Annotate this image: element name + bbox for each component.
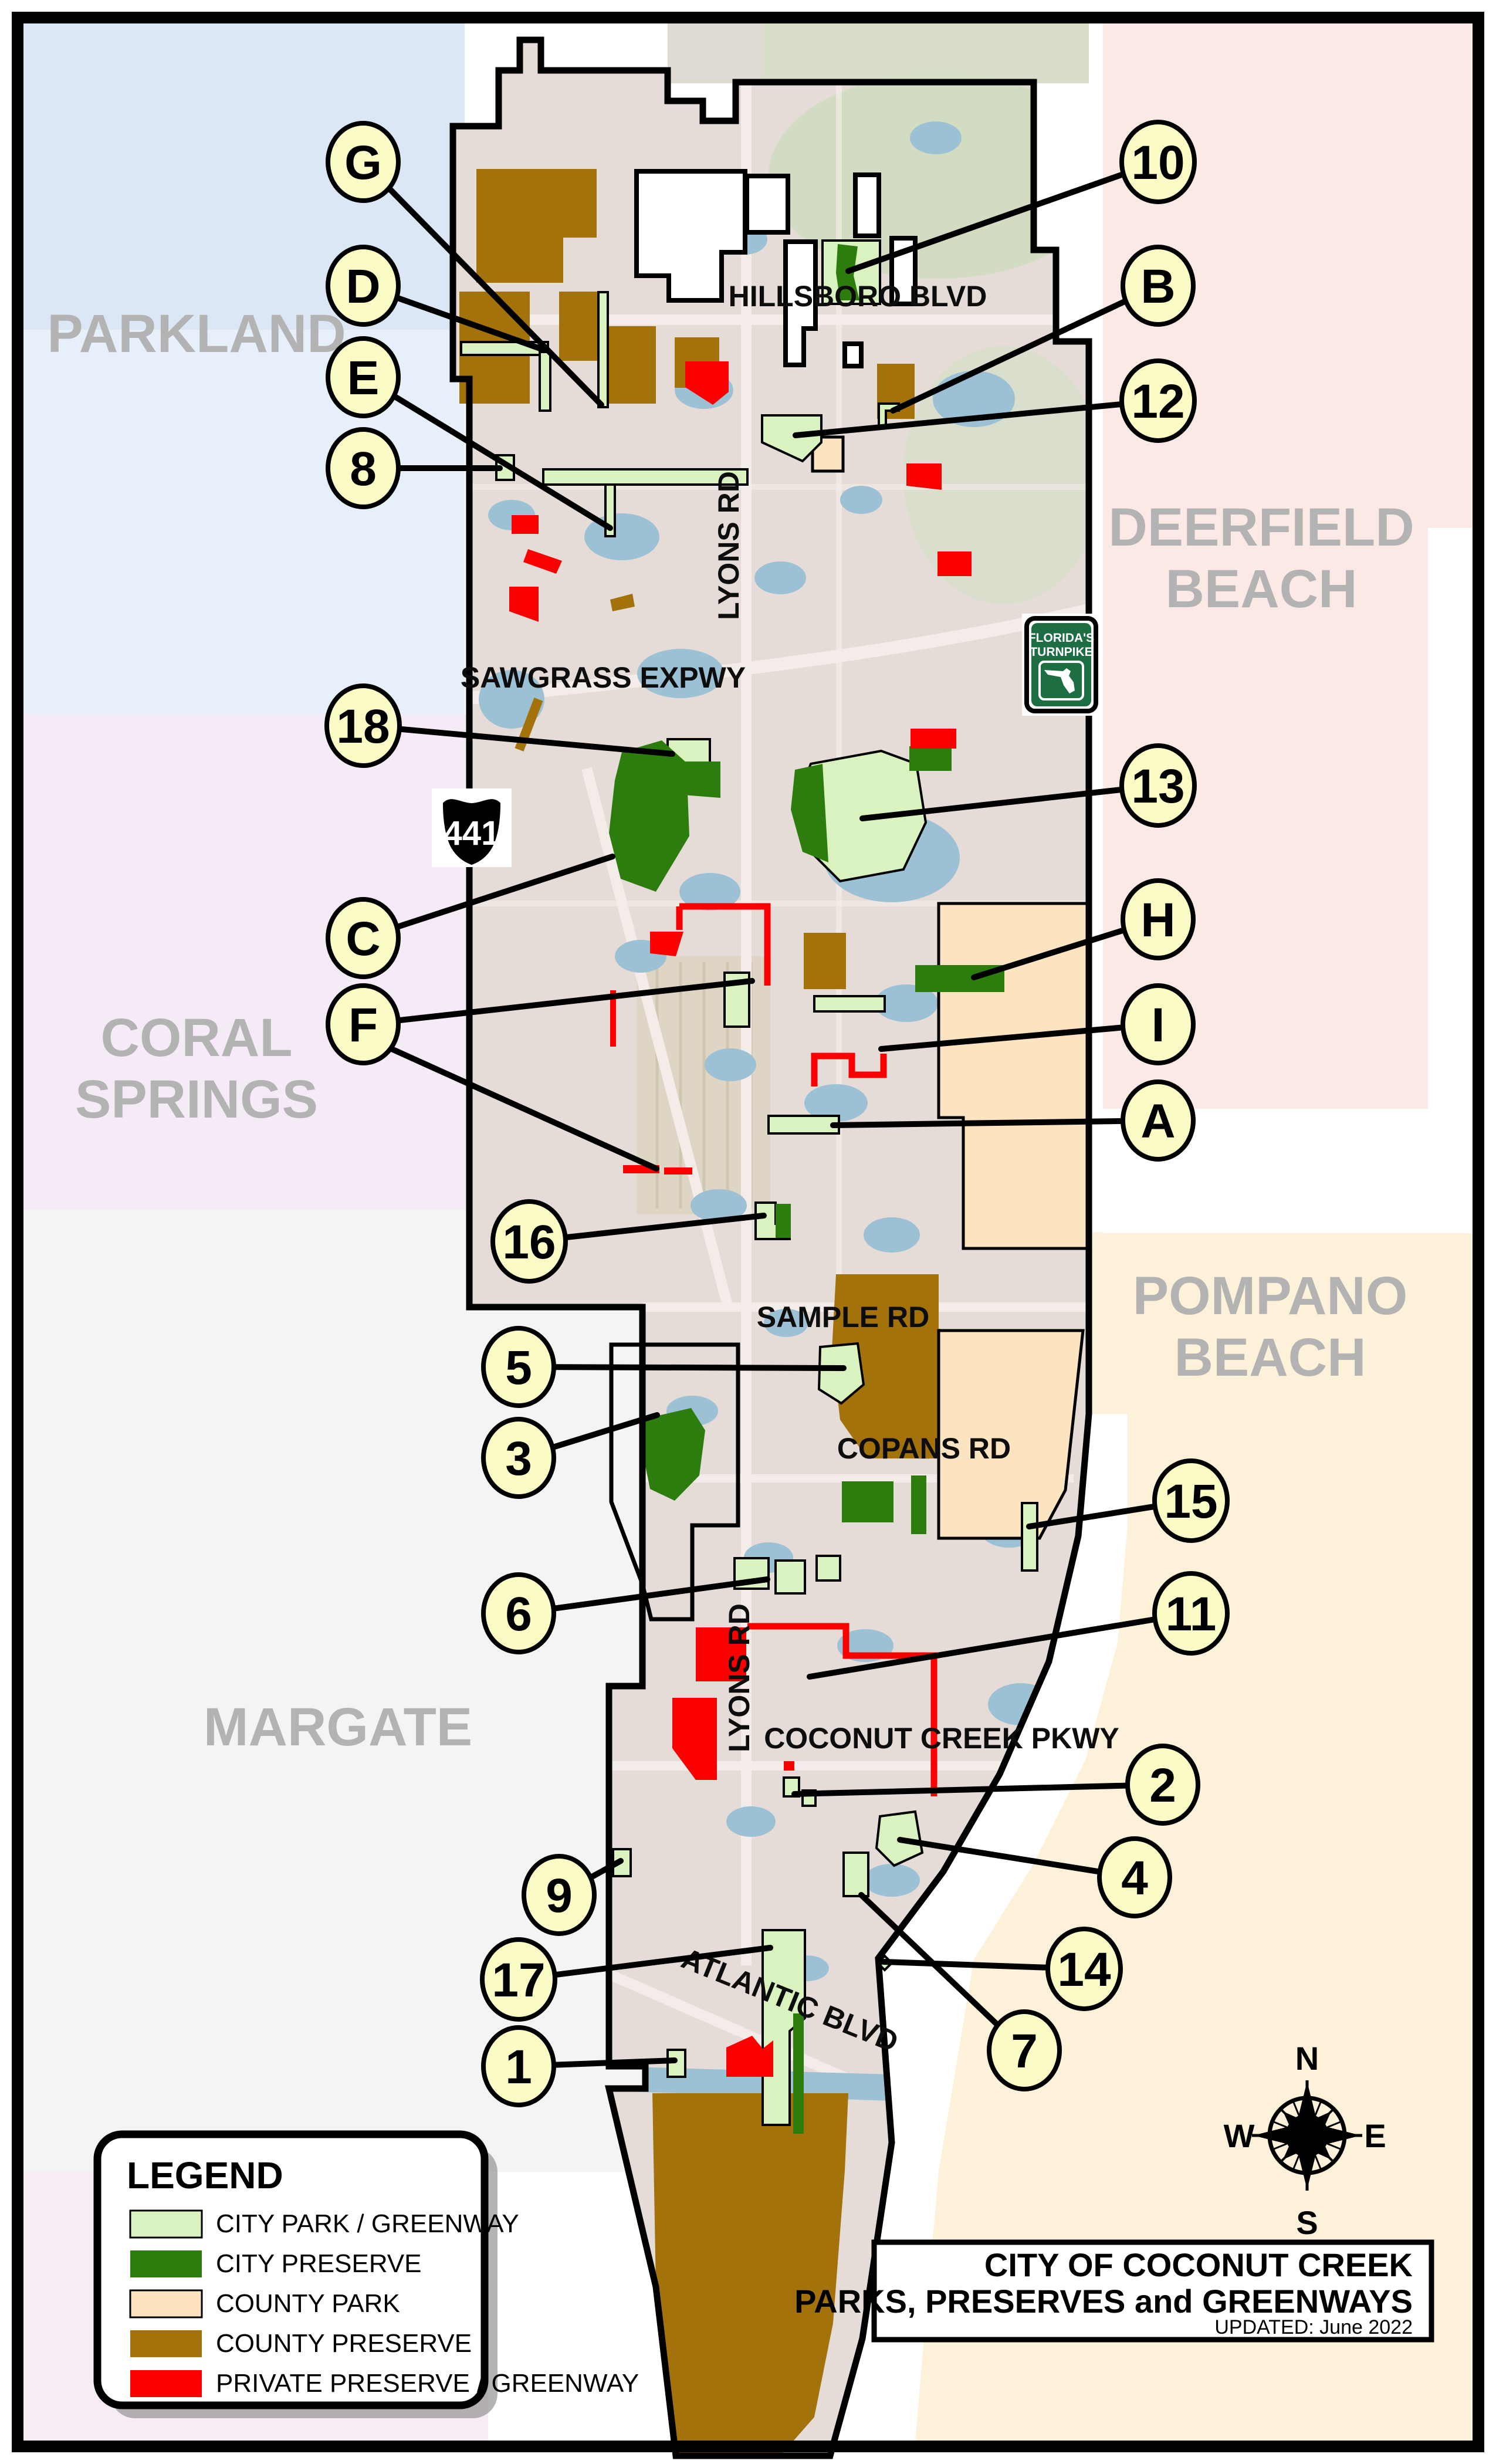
turnpike-label-line1: FLORIDA'S xyxy=(1028,631,1094,645)
callout-5: 5 xyxy=(483,1328,554,1406)
svg-text:16: 16 xyxy=(502,1216,556,1269)
callout-F: F xyxy=(328,986,398,1063)
callout-7: 7 xyxy=(989,2012,1060,2089)
svg-text:B: B xyxy=(1140,260,1175,313)
deerfield-label-line1: DEERFIELD xyxy=(1108,497,1414,557)
svg-text:H: H xyxy=(1140,893,1175,947)
compass-east-label: E xyxy=(1364,2117,1386,2154)
coral-springs-label-line2: SPRINGS xyxy=(75,1069,318,1129)
svg-text:C: C xyxy=(346,912,380,966)
svg-text:E: E xyxy=(347,351,380,405)
callout-10: 10 xyxy=(1122,122,1194,202)
callout-G: G xyxy=(328,123,398,201)
margate-label: MARGATE xyxy=(204,1697,472,1757)
legend-swatch-county-preserve xyxy=(130,2330,202,2357)
coral-springs-label-line1: CORAL xyxy=(100,1008,292,1068)
callout-17: 17 xyxy=(482,1940,555,2019)
legend-label-county-park: COUNTY PARK xyxy=(216,2289,400,2318)
turnpike-shield-icon: FLORIDA'S TURNPIKE xyxy=(1022,614,1101,716)
parkland-label: PARKLAND xyxy=(47,304,346,364)
svg-text:14: 14 xyxy=(1057,1943,1111,1996)
map-title-line2: PARKS, PRESERVES and GREENWAYS xyxy=(794,2283,1413,2320)
callout-A: A xyxy=(1123,1082,1193,1159)
right-edge-strip xyxy=(1428,528,1473,1109)
lyons-rd-north-label: LYONS RD xyxy=(712,471,745,620)
svg-text:13: 13 xyxy=(1131,760,1184,813)
callout-9: 9 xyxy=(524,1856,594,1934)
map-title-line1: CITY OF COCONUT CREEK xyxy=(984,2246,1413,2283)
callout-12: 12 xyxy=(1122,361,1194,441)
callout-E: E xyxy=(328,339,398,416)
svg-text:G: G xyxy=(344,136,382,189)
legend-label-private-preserve: PRIVATE PRESERVE / GREENWAY xyxy=(216,2369,639,2398)
callout-13: 13 xyxy=(1122,746,1194,825)
callout-8: 8 xyxy=(328,429,398,507)
map-updated-date: UPDATED: June 2022 xyxy=(1214,2316,1413,2338)
pompano-label-line1: POMPANO xyxy=(1133,1266,1408,1326)
legend-title: LEGEND xyxy=(127,2154,283,2196)
sample-rd-label: SAMPLE RD xyxy=(757,1301,929,1333)
svg-text:18: 18 xyxy=(336,700,390,753)
callout-15: 15 xyxy=(1155,1461,1227,1541)
sawgrass-expwy-label: SAWGRASS EXPWY xyxy=(461,661,746,694)
svg-text:D: D xyxy=(346,260,380,313)
callout-H: H xyxy=(1123,881,1193,958)
hillsboro-blvd-label: HILLSBORO BLVD xyxy=(729,280,987,313)
legend-swatch-city-park xyxy=(130,2211,202,2238)
callout-18: 18 xyxy=(327,686,400,766)
parks-map: HILLSBORO BLVD SAWGRASS EXPWY LYONS RD S… xyxy=(0,0,1496,2464)
callout-16: 16 xyxy=(493,1201,566,1281)
svg-text:10: 10 xyxy=(1131,136,1184,189)
svg-text:9: 9 xyxy=(546,1869,573,1923)
svg-text:3: 3 xyxy=(505,1432,532,1485)
callout-3: 3 xyxy=(483,1419,554,1497)
callout-2: 2 xyxy=(1128,1746,1198,1823)
svg-text:A: A xyxy=(1140,1095,1175,1148)
svg-text:15: 15 xyxy=(1164,1475,1217,1528)
svg-text:5: 5 xyxy=(505,1341,532,1395)
legend-swatch-private-preserve xyxy=(130,2370,202,2397)
callout-1: 1 xyxy=(483,2028,554,2105)
callout-4: 4 xyxy=(1099,1839,1170,1916)
copans-rd-label: COPANS RD xyxy=(837,1432,1011,1465)
coconut-creek-pkwy-label: COCONUT CREEK PKWY xyxy=(764,1722,1119,1755)
legend-swatch-county-park xyxy=(130,2290,202,2317)
legend-label-city-park: CITY PARK / GREENWAY xyxy=(216,2209,519,2238)
svg-text:6: 6 xyxy=(505,1588,532,1641)
us-441-shield-icon: 441 xyxy=(432,788,512,867)
legend-label-city-preserve: CITY PRESERVE xyxy=(216,2249,422,2278)
callout-14: 14 xyxy=(1048,1929,1121,2009)
callout-D: D xyxy=(328,247,398,324)
us-441-shield-number: 441 xyxy=(444,814,500,852)
compass-south-label: S xyxy=(1296,2204,1318,2241)
svg-text:8: 8 xyxy=(350,442,377,496)
coral-springs-area xyxy=(23,714,475,1210)
compass-west-label: W xyxy=(1224,2117,1255,2154)
svg-text:12: 12 xyxy=(1131,375,1184,428)
pompano-label-line2: BEACH xyxy=(1174,1328,1366,1387)
callout-B: B xyxy=(1123,247,1193,324)
callout-11: 11 xyxy=(1155,1573,1227,1653)
legend-label-county-preserve: COUNTY PRESERVE xyxy=(216,2329,472,2358)
svg-text:1: 1 xyxy=(505,2040,532,2094)
deerfield-label-line2: BEACH xyxy=(1165,559,1357,619)
title-block: CITY OF COCONUT CREEK PARKS, PRESERVES a… xyxy=(794,2242,1431,2340)
svg-text:11: 11 xyxy=(1166,1588,1217,1641)
legend-swatch-city-preserve xyxy=(130,2250,202,2277)
compass-north-label: N xyxy=(1295,2040,1319,2077)
lyons-rd-south-label: LYONS RD xyxy=(723,1603,756,1752)
turnpike-label-line2: TURNPIKE xyxy=(1030,645,1092,659)
callout-I: I xyxy=(1123,986,1193,1063)
svg-text:4: 4 xyxy=(1121,1852,1148,1905)
svg-text:2: 2 xyxy=(1149,1759,1176,1812)
callout-C: C xyxy=(328,899,398,977)
svg-text:F: F xyxy=(348,999,378,1052)
svg-text:7: 7 xyxy=(1011,2025,1038,2078)
svg-text:I: I xyxy=(1152,999,1165,1052)
svg-text:17: 17 xyxy=(492,1954,545,2007)
callout-6: 6 xyxy=(483,1575,554,1652)
